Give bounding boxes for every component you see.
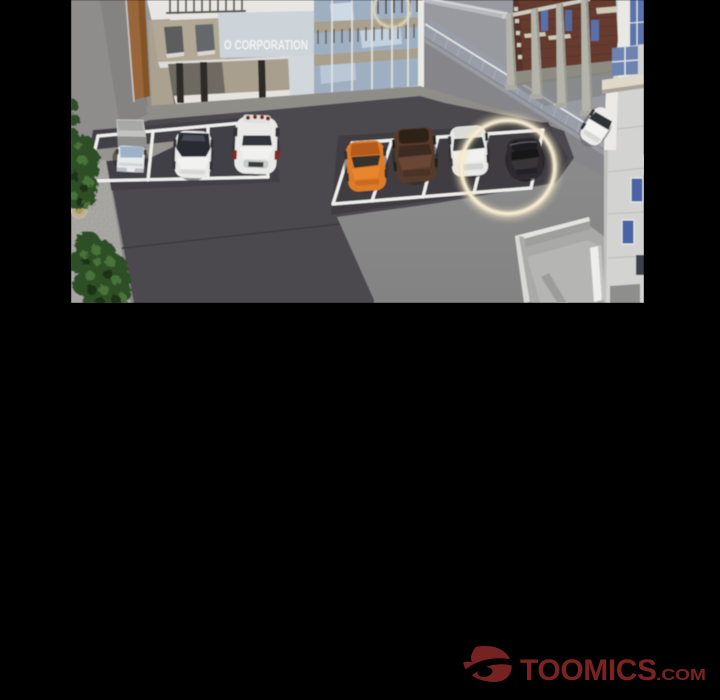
svg-text:O CORPORATION: O CORPORATION <box>224 38 308 53</box>
svg-text:TOOMICS: TOOMICS <box>520 654 657 687</box>
svg-text:.COM: .COM <box>656 667 706 684</box>
